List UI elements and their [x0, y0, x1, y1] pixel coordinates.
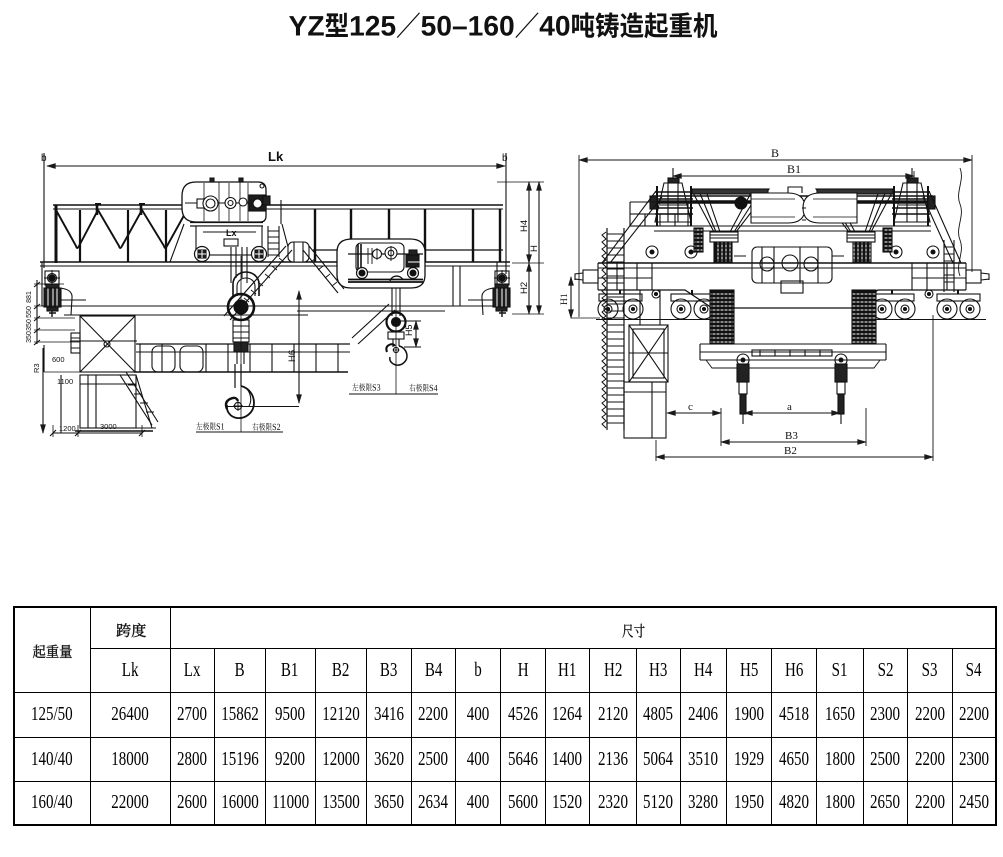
svg-text:Lk: Lk [268, 149, 284, 164]
svg-text:3000: 3000 [100, 422, 117, 431]
svg-text:600: 600 [52, 355, 65, 364]
svg-text:b: b [41, 153, 47, 164]
svg-text:B3: B3 [785, 430, 798, 442]
svg-text:B2: B2 [784, 445, 797, 457]
svg-text:H: H [529, 245, 540, 252]
svg-text:c: c [688, 401, 693, 413]
svg-text:H2: H2 [519, 282, 530, 294]
svg-text:a: a [787, 401, 792, 413]
svg-text:881: 881 [26, 291, 33, 303]
svg-text:H1: H1 [560, 293, 570, 305]
svg-text:550: 550 [26, 306, 33, 318]
svg-text:350: 350 [26, 331, 33, 343]
svg-text:R3: R3 [32, 363, 41, 373]
svg-text:1100: 1100 [57, 377, 73, 386]
svg-text:H5: H5 [404, 324, 414, 336]
svg-text:B1: B1 [787, 162, 801, 176]
svg-text:H6: H6 [287, 350, 298, 362]
svg-text:Lx: Lx [226, 228, 237, 238]
svg-text:B: B [771, 146, 779, 160]
svg-text:1200: 1200 [59, 424, 76, 433]
svg-text:b: b [502, 153, 508, 164]
svg-text:350: 350 [26, 319, 33, 331]
svg-text:H4: H4 [519, 220, 530, 232]
